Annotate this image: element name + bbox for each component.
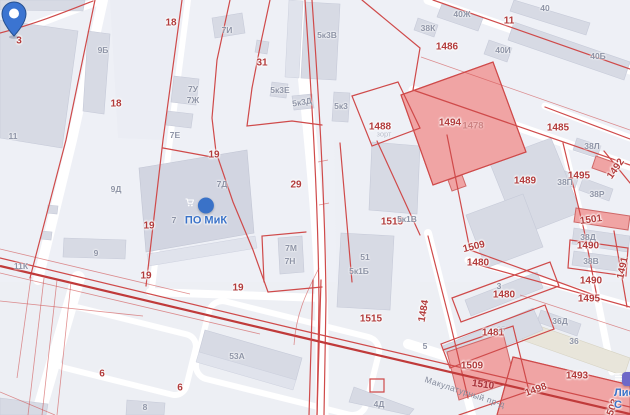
parcel-label: 19: [140, 271, 151, 282]
building-label: 5к3В: [317, 30, 337, 40]
building-label: 40И: [495, 45, 511, 55]
building-label: 7М: [285, 243, 297, 253]
poi-list-s[interactable]: Лист-С: [614, 372, 630, 411]
poi-po-mik[interactable]: ПО МиК: [185, 198, 227, 227]
building-label: 5: [423, 341, 428, 351]
building-label: зорт: [377, 130, 392, 139]
building-label: 7Е: [170, 130, 180, 140]
building-label: 3: [497, 281, 502, 291]
building-label: 25: [497, 325, 505, 334]
building-label: 40: [540, 3, 549, 13]
parcel-label: 1480: [493, 290, 515, 301]
parcel-label: 1486: [436, 42, 458, 53]
building-label: 9Д: [111, 184, 122, 194]
parcel-label: 1493: [566, 371, 588, 382]
building-label: 40Ж: [453, 9, 470, 19]
map-pin-icon[interactable]: [0, 0, 28, 40]
parcel-label: 6: [177, 383, 183, 394]
building-label: 11: [9, 131, 18, 141]
building-label: 7У: [188, 84, 198, 94]
building-label: 36: [569, 336, 578, 346]
parcel-label: 1489: [514, 176, 536, 187]
pin-parcel-label: 29: [290, 180, 301, 191]
parcel-label: 18: [110, 99, 121, 110]
parcel-label: 19: [232, 283, 243, 294]
poi-label: ПО МиК: [185, 215, 227, 227]
list-icon: [622, 372, 630, 386]
parcel-label: 1480: [467, 258, 489, 269]
parcel-label: 6: [99, 369, 105, 380]
building-label: 9Б: [98, 45, 109, 55]
building-label: 5к3: [334, 101, 348, 111]
building-label: 5к1Б: [349, 266, 369, 276]
parcel-label: 19: [143, 221, 154, 232]
parcel-label: 1509: [461, 361, 483, 372]
building-label: 38В: [583, 256, 599, 266]
building-label: 38П: [557, 177, 573, 187]
building-label: 51: [360, 252, 369, 262]
building-label: 5к1В: [397, 214, 417, 224]
building-label: 8: [143, 402, 148, 412]
building-label: 36Д: [552, 316, 568, 326]
shopping-cart-icon: [198, 198, 214, 214]
building-label: 38К: [421, 23, 436, 33]
building-label: 7Д: [217, 179, 228, 189]
parcel-label: 1478: [462, 121, 483, 132]
parcel-label: 1485: [547, 123, 569, 134]
building-label: 7И: [222, 25, 233, 35]
building-label: 7Ж: [187, 95, 199, 105]
building-label: 9: [94, 248, 99, 258]
parcel-label: 1490: [580, 276, 602, 287]
building-label: 7: [172, 215, 177, 225]
parcel-label: 1495: [578, 294, 600, 305]
poi-label: Лист-С: [614, 387, 630, 411]
map-tiles: [0, 0, 630, 415]
building-label: 5к3Е: [270, 85, 289, 95]
map-canvas[interactable]: 3 18 18 31 11 1486 1488 1494 1478 1485 1…: [0, 0, 630, 415]
building-label: 4Д: [374, 399, 385, 409]
building-label: 38Д: [580, 232, 596, 242]
parcel-label: 1494: [439, 118, 461, 129]
parcel-label: 11: [504, 16, 515, 27]
parcel-label: 19: [208, 150, 219, 161]
building-label: 53А: [229, 351, 245, 361]
building-label: 38Р: [589, 189, 604, 199]
parcel-label: 1515: [360, 314, 382, 325]
parcel-label: 31: [256, 58, 267, 69]
building-label: 40Б: [590, 51, 606, 61]
building-label: 7Н: [285, 256, 296, 266]
parcel-label: 1490: [577, 241, 599, 252]
building-label: 38Л: [584, 141, 599, 151]
building-label: 11К: [14, 261, 28, 271]
parcel-label: 18: [165, 18, 176, 29]
